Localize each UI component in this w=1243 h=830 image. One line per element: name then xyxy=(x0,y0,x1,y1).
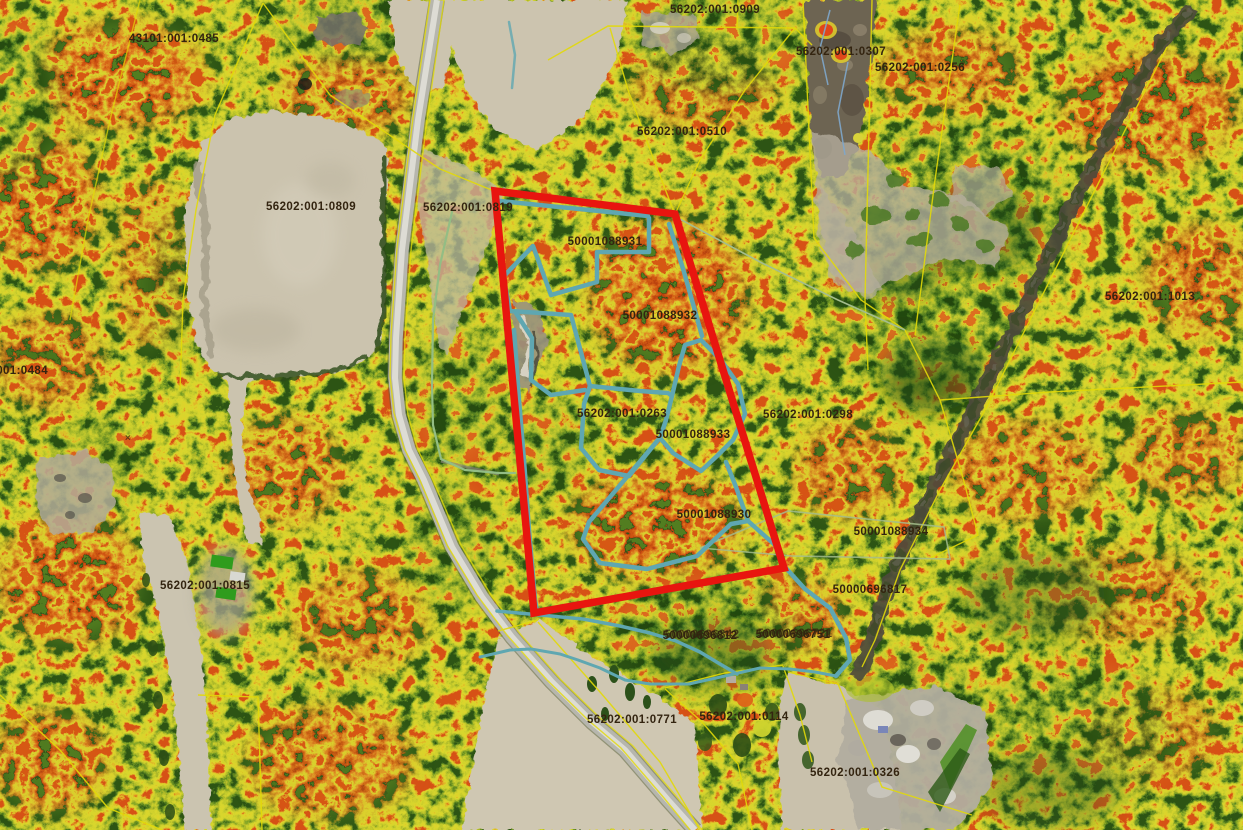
svg-text:50000696842: 50000696842 xyxy=(665,629,740,641)
svg-text:50000696721: 50000696721 xyxy=(758,628,833,640)
svg-text:56202:001:0815: 56202:001:0815 xyxy=(160,580,250,592)
svg-text:56202:001:0298: 56202:001:0298 xyxy=(763,409,853,421)
svg-text:56202:001:0263: 56202:001:0263 xyxy=(577,408,667,420)
svg-text:×: × xyxy=(125,433,131,444)
svg-text:56202:001:0809: 56202:001:0809 xyxy=(266,201,356,213)
svg-text:50001088933: 50001088933 xyxy=(656,429,731,441)
svg-text:56202:001:0326: 56202:001:0326 xyxy=(810,767,900,779)
svg-text:50001088932: 50001088932 xyxy=(623,310,698,322)
svg-text:50001088934: 50001088934 xyxy=(854,526,929,538)
svg-text:56202:001:0484: 56202:001:0484 xyxy=(0,365,48,377)
svg-text:56202:001:0909: 56202:001:0909 xyxy=(670,4,760,16)
svg-text:50000696817: 50000696817 xyxy=(833,584,908,596)
svg-text:56202:001:0256: 56202:001:0256 xyxy=(875,62,965,74)
svg-text:50001088931: 50001088931 xyxy=(568,236,643,248)
svg-text:56202:001:0819: 56202:001:0819 xyxy=(423,202,513,214)
svg-text:56202:001:0307: 56202:001:0307 xyxy=(796,46,886,58)
svg-text:56202:001:1013: 56202:001:1013 xyxy=(1105,291,1195,303)
svg-text:56202:001:0510: 56202:001:0510 xyxy=(637,126,727,138)
svg-text:56202:001:0771: 56202:001:0771 xyxy=(587,714,677,726)
svg-text:56202:001:0114: 56202:001:0114 xyxy=(699,711,789,723)
svg-text:43101:001:0485: 43101:001:0485 xyxy=(129,33,219,45)
svg-text:50001088930: 50001088930 xyxy=(677,509,752,521)
